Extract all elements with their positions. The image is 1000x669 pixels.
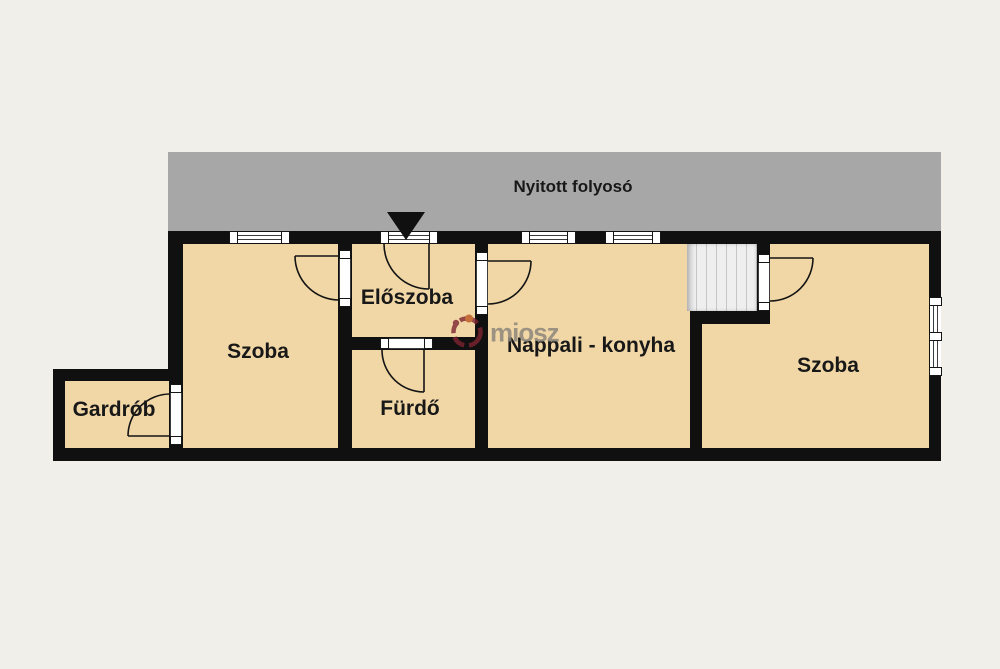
- door-cap: [758, 254, 770, 263]
- floor-plan: Nyitott folyosó Szoba Előszoba Fürdő Nap…: [0, 0, 1000, 669]
- door-cap: [339, 250, 351, 259]
- window-cap: [605, 231, 614, 244]
- window-cap: [521, 231, 530, 244]
- door-opening-gardrob: [170, 384, 182, 445]
- door-cap: [424, 338, 433, 349]
- room-label-eloszoba: Előszoba: [361, 286, 453, 310]
- door-cap: [339, 298, 351, 307]
- window-cap: [652, 231, 661, 244]
- window: [229, 232, 290, 243]
- window-cap: [929, 297, 942, 306]
- door-cap: [380, 231, 389, 244]
- window-cap: [567, 231, 576, 244]
- watermark-text: miosz: [490, 318, 559, 349]
- door-cap: [170, 436, 182, 445]
- window-cap: [929, 367, 942, 376]
- room-label-gardrob: Gardrób: [73, 398, 156, 422]
- room-label-furdo: Fürdő: [380, 397, 439, 421]
- stairs: [687, 244, 757, 311]
- window: [521, 232, 576, 243]
- door-cap: [170, 384, 182, 393]
- door-cap: [476, 306, 488, 315]
- window-cap: [281, 231, 290, 244]
- door-opening-szoba-left: [339, 250, 351, 307]
- window: [605, 232, 661, 243]
- window: [930, 297, 941, 376]
- room-szoba-right-main: [770, 244, 929, 448]
- room-szoba-right-extension: [702, 324, 770, 448]
- window-cap: [929, 332, 942, 341]
- corridor-label: Nyitott folyosó: [514, 177, 633, 197]
- room-label-szoba-left: Szoba: [227, 340, 289, 364]
- entrance-door-opening: [380, 232, 438, 243]
- door-opening-furdo: [380, 338, 433, 349]
- window-cap: [229, 231, 238, 244]
- door-cap: [476, 252, 488, 261]
- room-label-szoba-right: Szoba: [797, 354, 859, 378]
- door-opening-szoba-right: [758, 254, 770, 311]
- door-cap: [758, 302, 770, 311]
- door-cap: [380, 338, 389, 349]
- door-cap: [429, 231, 438, 244]
- door-opening-nappali: [476, 252, 488, 315]
